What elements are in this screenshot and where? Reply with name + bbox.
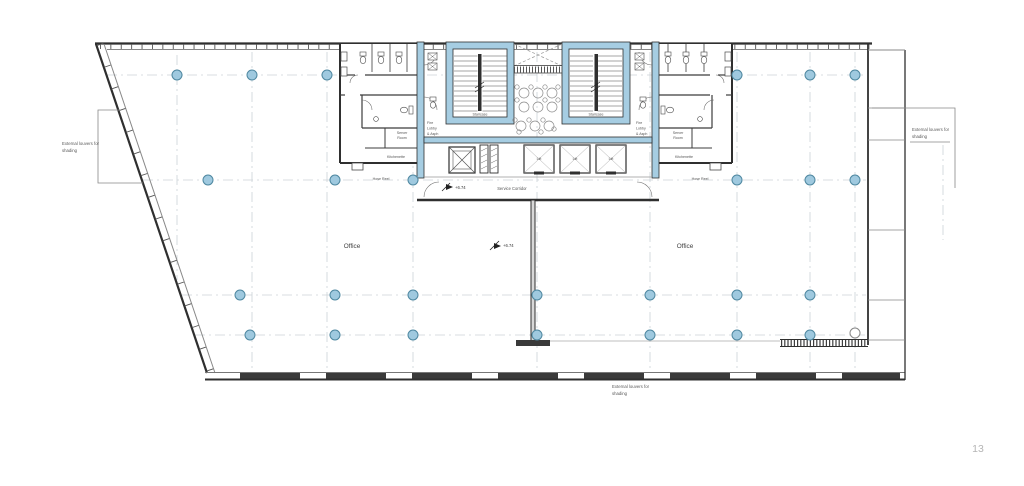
fire-lobby-west: Fire Lobby & Asph: [424, 52, 439, 197]
note-louvers-south-1: External louvers for: [612, 384, 650, 389]
toilet-block-east: [659, 44, 732, 170]
note-louvers-west-2: shading: [62, 148, 78, 153]
label-hose-reel-east: Hose Reel: [692, 177, 709, 181]
tables-and-chairs: [513, 85, 560, 134]
label-office-west: Office: [344, 243, 361, 250]
label-server-room-west-1: Server: [397, 131, 408, 135]
floor-plan: Staircase Staircase: [0, 0, 1024, 486]
note-louvers-west-1: External louvers for: [62, 141, 100, 146]
label-fire-lobby-east-1: Fire: [636, 121, 642, 125]
label-staircase-west: Staircase: [473, 113, 488, 117]
lift-bank: Lift Lift Lift: [524, 145, 626, 175]
label-hose-reel-west: Hose Reel: [373, 177, 390, 181]
columns: [172, 70, 860, 340]
hose-reel-cabinet-east: [710, 163, 721, 170]
page-number: 13: [972, 443, 984, 455]
label-level-office: +6.74: [503, 243, 514, 248]
label-office-east: Office: [677, 243, 694, 250]
note-louvers-east-1: External louvers for: [912, 127, 950, 132]
annotation-louvers-east: External louvers for shading: [872, 108, 955, 188]
label-lift-3: Lift: [609, 157, 614, 161]
label-fire-lobby-west-1: Fire: [427, 121, 433, 125]
level-marker-office: +6.74: [490, 241, 514, 250]
core-wall-lift-lobby: [424, 137, 652, 143]
level-marker-corridor-icon: [446, 184, 453, 190]
label-service-corridor: Service Corridor: [497, 186, 527, 191]
note-louvers-south-2: shading: [612, 391, 628, 396]
annotation-louvers-south: External louvers for shading: [612, 384, 650, 396]
label-fire-lobby-west-3: & Asph: [427, 132, 438, 136]
label-kitchenette-west: Kitchenette: [387, 155, 405, 159]
service-corridor: Service Corridor +6.74: [417, 177, 659, 200]
staircase-west: Staircase: [446, 42, 514, 124]
core-wall-east: [652, 42, 659, 178]
label-level-corridor: +6.74: [455, 185, 466, 190]
core-wall-west: [417, 42, 424, 178]
fire-lobby-east: Fire Lobby & Asph: [635, 52, 652, 197]
label-fire-lobby-west-2: Lobby: [427, 127, 437, 131]
note-louvers-east-2: shading: [912, 134, 928, 139]
toilet-block-west: [340, 44, 417, 170]
breakout-area: [513, 44, 562, 134]
hose-reel-cabinet-west: [352, 163, 363, 170]
label-kitchenette-east: Kitchenette: [675, 155, 693, 159]
label-server-room-east-2: Room: [673, 136, 683, 140]
label-lift-1: Lift: [537, 157, 542, 161]
staircase-east: Staircase: [562, 42, 630, 124]
label-server-room-west-2: Room: [397, 136, 407, 140]
label-fire-lobby-east-3: & Asph: [636, 132, 647, 136]
label-staircase-east: Staircase: [589, 113, 604, 117]
label-fire-lobby-east-2: Lobby: [636, 127, 646, 131]
spine-wall: [516, 200, 550, 346]
structural-grid: [107, 52, 943, 370]
label-lift-2: Lift: [573, 157, 578, 161]
label-server-room-east-1: Server: [673, 131, 684, 135]
service-shaft: [449, 145, 498, 173]
